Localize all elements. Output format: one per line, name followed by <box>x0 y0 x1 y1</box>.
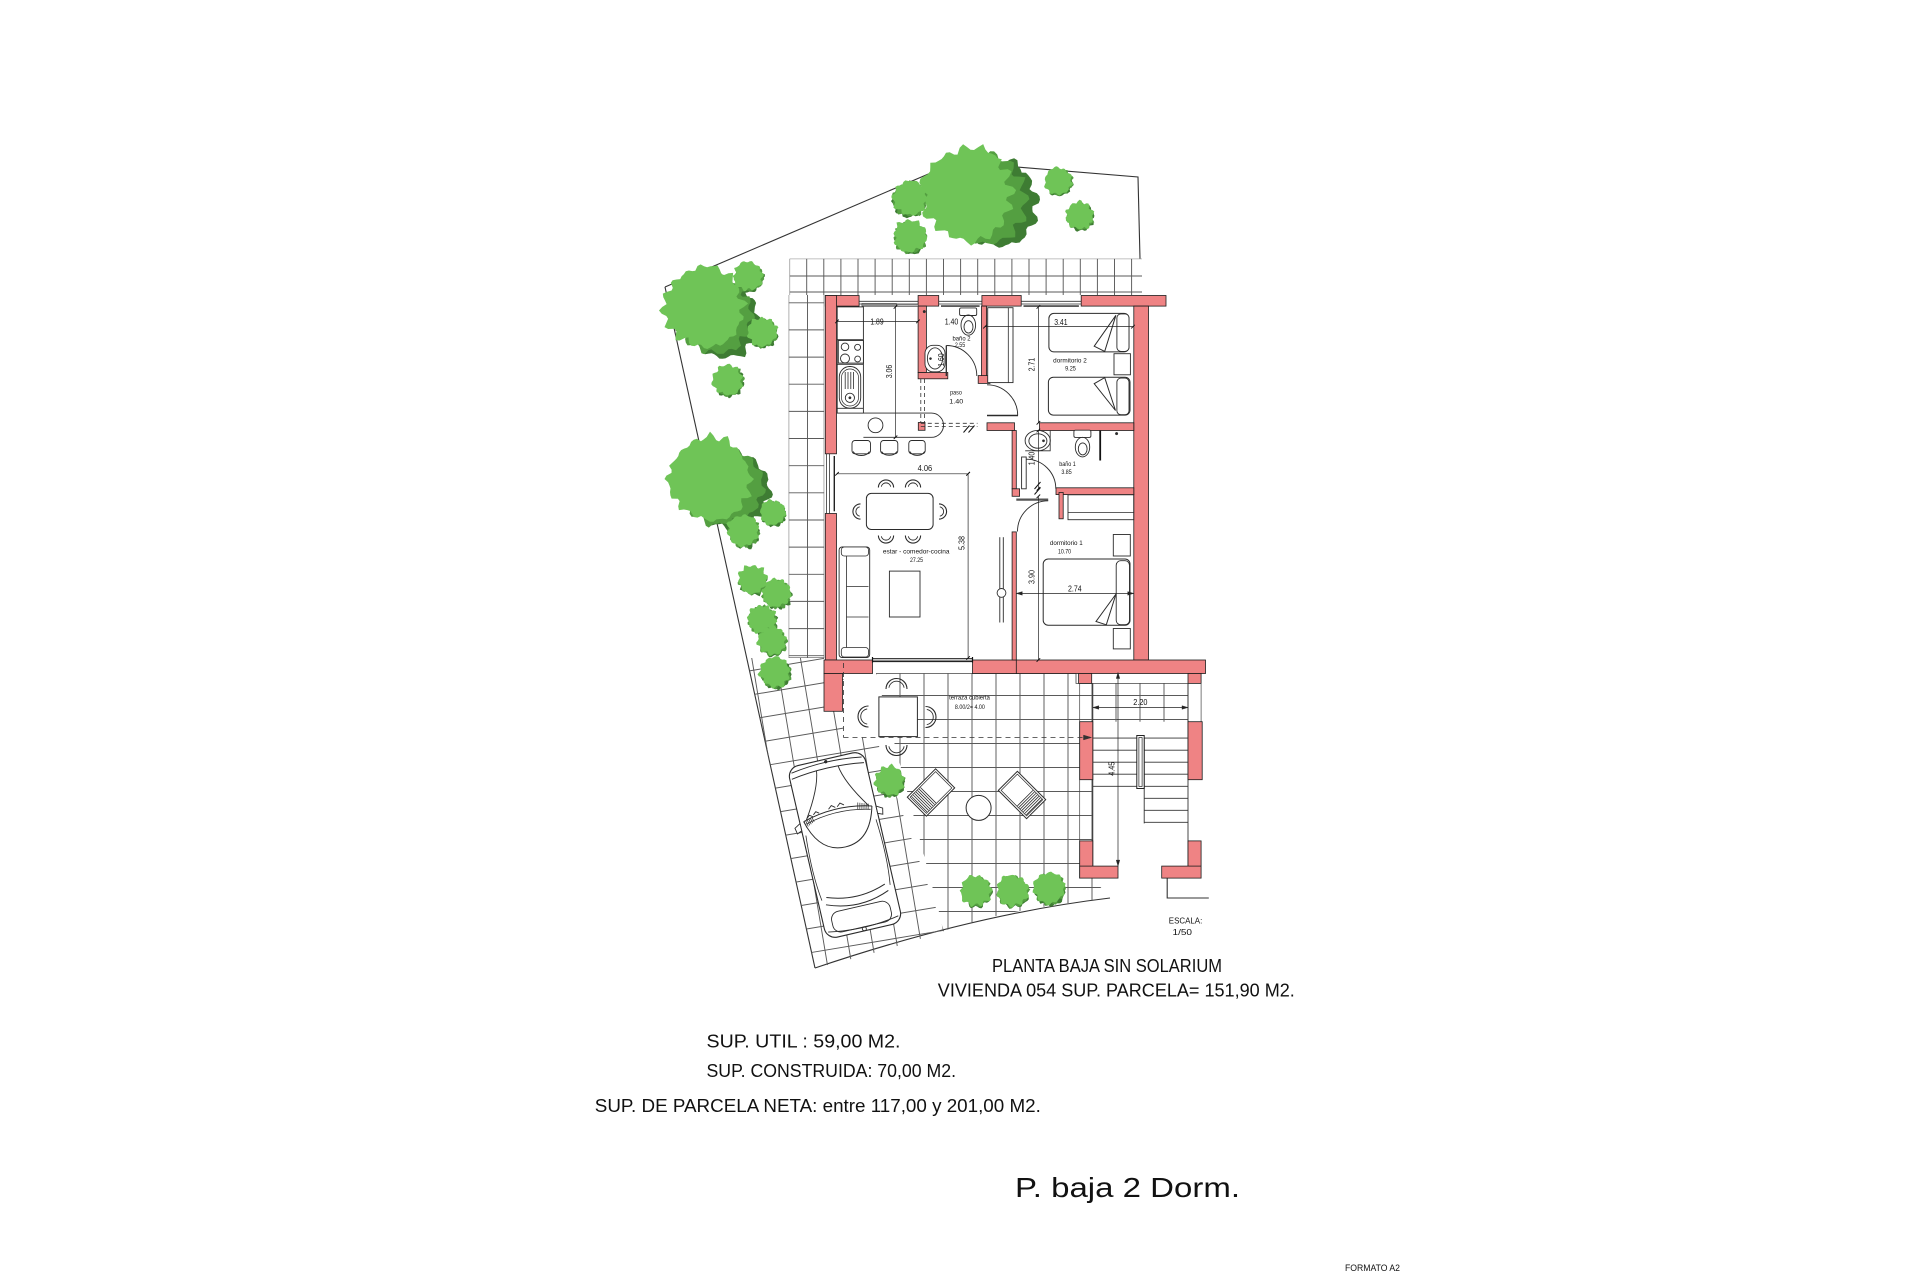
svg-text:3.90: 3.90 <box>1028 570 1037 584</box>
svg-text:4.45: 4.45 <box>1107 761 1116 775</box>
svg-text:9.25: 9.25 <box>1065 366 1076 373</box>
svg-text:4.06: 4.06 <box>918 464 933 473</box>
svg-text:2.74: 2.74 <box>1068 584 1082 593</box>
svg-text:dormitorio 2: dormitorio 2 <box>1053 358 1087 365</box>
svg-text:estar - comedor-cocina: estar - comedor-cocina <box>883 548 950 555</box>
svg-text:1/50: 1/50 <box>1173 927 1193 937</box>
svg-text:1.89: 1.89 <box>870 317 884 326</box>
svg-text:VIVIENDA 054 SUP. PARCELA= 151: VIVIENDA 054 SUP. PARCELA= 151,90 M2. <box>938 980 1295 1000</box>
svg-text:baño 1: baño 1 <box>1059 461 1076 468</box>
svg-text:SUP. UTIL : 59,00 M2.: SUP. UTIL : 59,00 M2. <box>707 1031 901 1051</box>
svg-text:1.40: 1.40 <box>949 399 964 406</box>
svg-text:dormitorio 1: dormitorio 1 <box>1050 540 1083 547</box>
svg-text:1.40: 1.40 <box>1028 451 1037 465</box>
svg-text:P. baja 2 Dorm.: P. baja 2 Dorm. <box>1015 1172 1240 1203</box>
svg-text:FORMATO A2: FORMATO A2 <box>1345 1263 1400 1273</box>
svg-text:SUP. DE PARCELA NETA: entre 11: SUP. DE PARCELA NETA: entre 117,00 y 201… <box>595 1096 1041 1116</box>
svg-text:1.60: 1.60 <box>937 353 946 367</box>
svg-text:8.00/2= 4.00: 8.00/2= 4.00 <box>955 704 986 711</box>
svg-text:2.20: 2.20 <box>1133 698 1148 707</box>
svg-text:10.70: 10.70 <box>1058 549 1072 556</box>
svg-text:terraza cubierta: terraza cubierta <box>949 695 990 702</box>
svg-text:ESCALA:: ESCALA: <box>1169 916 1203 926</box>
svg-text:3.41: 3.41 <box>1054 318 1068 327</box>
svg-text:3.06: 3.06 <box>885 364 894 378</box>
svg-text:2.55: 2.55 <box>955 342 966 349</box>
svg-text:5.38: 5.38 <box>957 536 966 550</box>
svg-text:27.25: 27.25 <box>910 557 924 564</box>
svg-text:3.85: 3.85 <box>1061 469 1072 476</box>
svg-text:2.71: 2.71 <box>1028 357 1037 371</box>
svg-text:paso: paso <box>950 389 962 396</box>
svg-text:SUP. CONSTRUIDA: 70,00 M2.: SUP. CONSTRUIDA: 70,00 M2. <box>707 1061 957 1081</box>
svg-text:PLANTA BAJA SIN SOLARIUM: PLANTA BAJA SIN SOLARIUM <box>992 956 1222 976</box>
svg-text:1.40: 1.40 <box>945 317 959 326</box>
